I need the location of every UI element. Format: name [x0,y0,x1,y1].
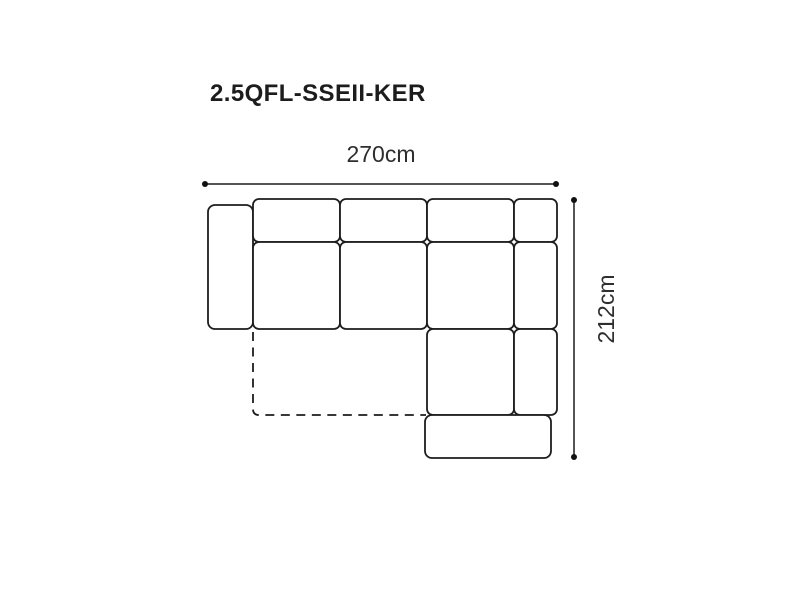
furniture-dimension-diagram: 2.5QFL-SSEII-KER 270cm 212cm [0,0,800,600]
module-backrest-1 [253,199,340,242]
sofa-modules [208,199,557,458]
height-dimension-endpoint-dot-top [571,197,577,203]
width-dimension-line [202,181,559,187]
sofa-top-view-drawing: 212cm [0,0,800,600]
height-dimension-endpoint-dot-bottom [571,454,577,460]
bed-extension-dashed-outline [253,332,426,415]
module-backrest-3 [427,199,514,242]
module-seat-left [253,242,340,329]
module-left-armrest [208,205,253,329]
width-dimension-endpoint-dot-left [202,181,208,187]
width-dimension-endpoint-dot-right [553,181,559,187]
module-right-armrest-lower [514,329,557,415]
module-seat-corner [427,242,514,329]
module-backrest-corner [514,199,557,242]
height-dimension-line [571,197,577,460]
module-chaise-seat [427,329,514,415]
module-backrest-2 [340,199,427,242]
module-ottoman [425,415,551,458]
height-dimension-label: 212cm [593,274,619,343]
module-seat-middle [340,242,427,329]
module-right-armrest-upper [514,242,557,329]
